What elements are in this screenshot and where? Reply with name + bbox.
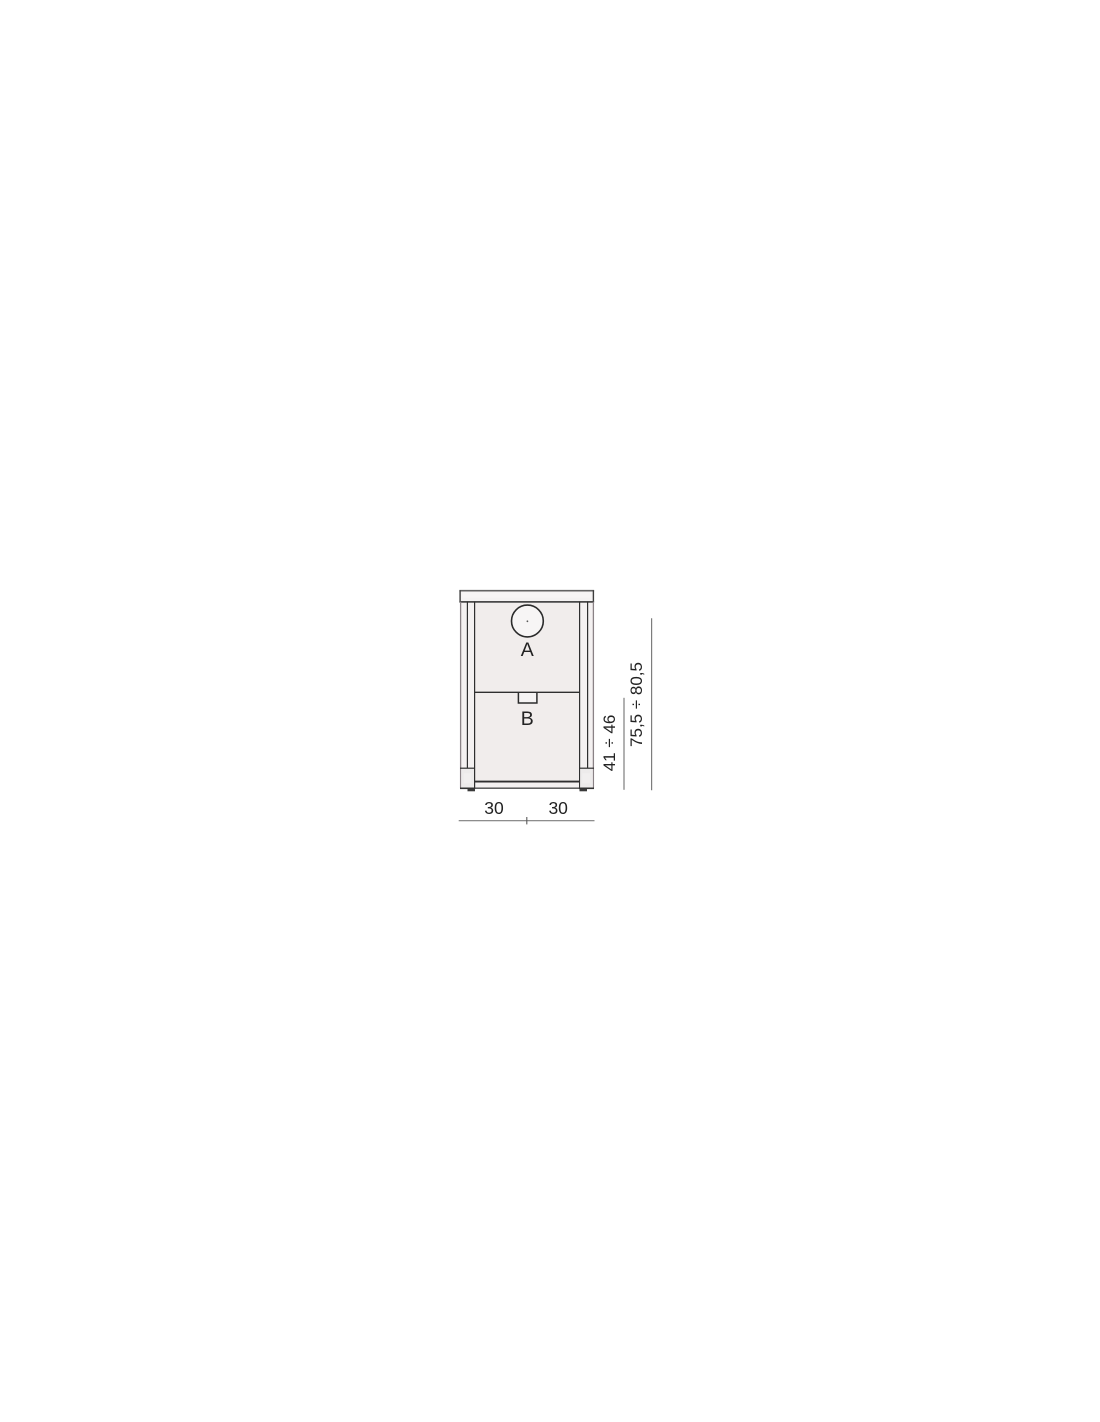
svg-text:B: B — [521, 708, 534, 730]
svg-text:A: A — [521, 639, 534, 661]
svg-text:30: 30 — [548, 798, 568, 818]
svg-text:75,5 ÷ 80,5: 75,5 ÷ 80,5 — [627, 662, 646, 747]
svg-text:30: 30 — [484, 798, 504, 818]
svg-text:41 ÷ 46: 41 ÷ 46 — [600, 715, 619, 772]
